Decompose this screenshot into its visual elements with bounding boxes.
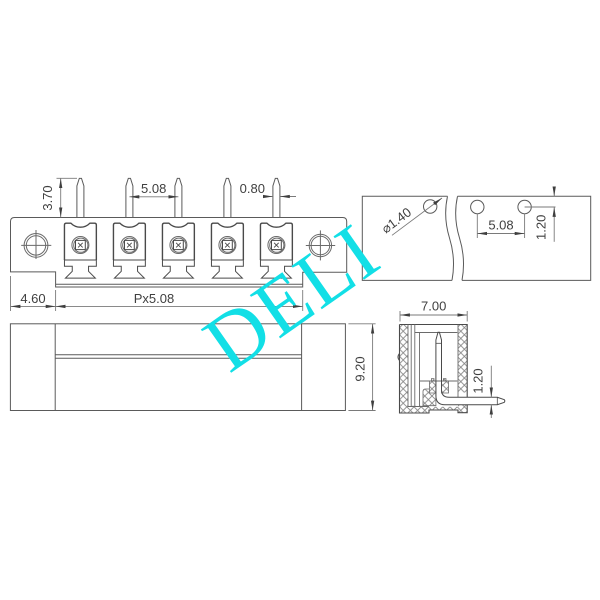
svg-text:3.70: 3.70: [40, 185, 55, 210]
svg-text:7.00: 7.00: [421, 299, 446, 314]
svg-text:5.08: 5.08: [488, 218, 513, 233]
svg-text:Px5.08: Px5.08: [134, 291, 174, 306]
svg-text:0.80: 0.80: [240, 181, 265, 196]
svg-text:1.20: 1.20: [471, 368, 486, 393]
svg-text:4.60: 4.60: [20, 291, 45, 306]
svg-text:9.20: 9.20: [353, 356, 368, 381]
svg-text:5.08: 5.08: [141, 181, 166, 196]
svg-text:1.20: 1.20: [534, 215, 549, 240]
